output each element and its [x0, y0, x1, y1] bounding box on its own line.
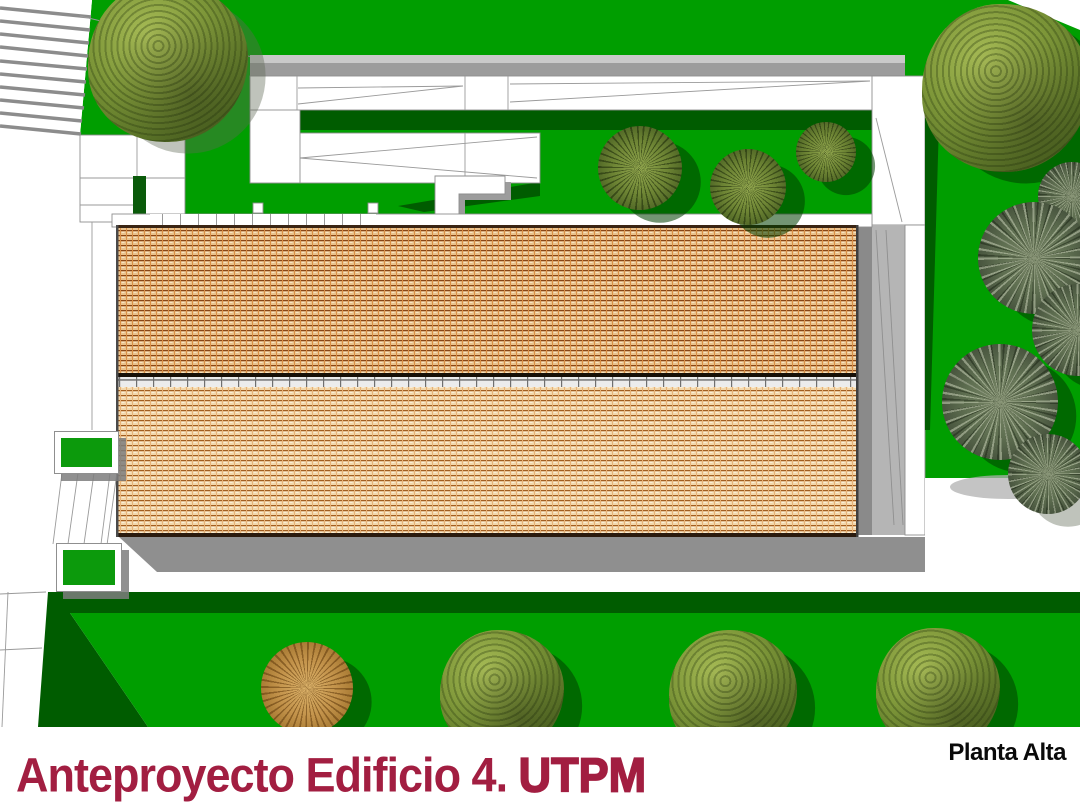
page-title-main: Anteproyecto Edificio 4. — [16, 747, 519, 802]
site-plan-page: Anteproyecto Edificio 4. UTPM Planta Alt… — [0, 0, 1080, 812]
planter-box — [54, 431, 119, 474]
planter-box — [56, 543, 122, 592]
page-title-suffix: UTPM — [519, 747, 647, 802]
tree-palm — [710, 149, 786, 225]
title-band: Anteproyecto Edificio 4. UTPM Planta Alt… — [0, 727, 1080, 812]
plan-level-label: Planta Alta — [948, 739, 1066, 767]
tree-palm — [796, 122, 856, 182]
tree-palm_orange — [261, 642, 353, 734]
tree-palm — [598, 126, 682, 210]
tree-broadleaf — [88, 0, 248, 142]
vegetation-layer — [0, 0, 1080, 727]
tree-broadleaf — [922, 4, 1080, 172]
tree-fern — [1008, 434, 1080, 514]
page-title: Anteproyecto Edificio 4. UTPM — [16, 747, 646, 803]
